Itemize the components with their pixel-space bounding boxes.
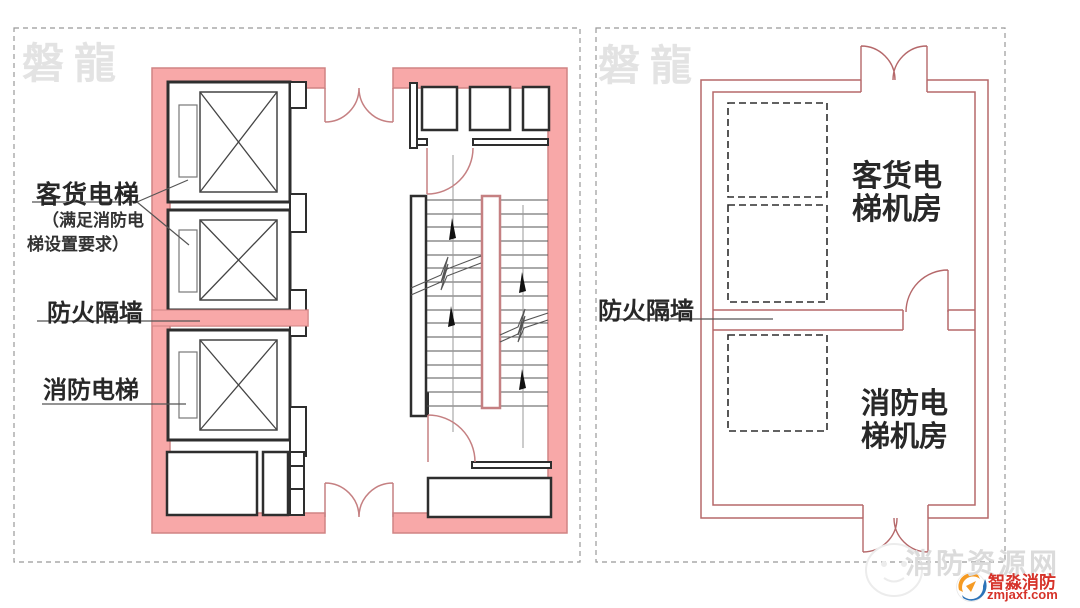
logo-domain: zmjaxf.com [987, 587, 1058, 602]
label-fire-machine-room: 消防电 梯机房 [861, 388, 948, 454]
watermark-panlong-left: 磐龍 [22, 30, 126, 91]
counterweight-3 [179, 352, 197, 418]
machine-room-doors [861, 46, 948, 552]
plan-linework [0, 0, 1080, 608]
machine-room-fire-partition [713, 310, 903, 330]
shaft-openings-dashed [728, 103, 827, 431]
counterweight-1 [179, 105, 197, 177]
label-fire-machine-room-line1: 消防电 [861, 388, 948, 421]
stair-break-lines [411, 256, 548, 342]
stairs [411, 155, 548, 448]
fire-partition-band [152, 310, 308, 326]
label-fire-machine-room-line2: 梯机房 [861, 421, 948, 454]
stair-rail-left [411, 196, 426, 416]
label-fire-elevator: 消防电梯 [43, 370, 139, 405]
label-fire-partition-left: 防火隔墙 [47, 293, 143, 328]
label-freight-machine-room: 客货电 梯机房 [852, 160, 942, 226]
bottom-service-rooms [167, 452, 304, 515]
label-freight-note-line2: 梯设置要求） [27, 230, 129, 255]
stair-rail-middle [482, 196, 500, 408]
label-freight-note-line1: （满足消防电 [42, 206, 144, 231]
label-freight-machine-room-line1: 客货电 [852, 160, 942, 193]
elevator-shafts [168, 82, 306, 456]
label-fire-partition-right: 防火隔墙 [598, 291, 694, 326]
watermark-panlong-right: 磐龍 [598, 32, 702, 93]
fire-elevator-diagram: 磐龍 磐龍 消防资源网 智淼消防 zmjaxf.com [0, 0, 1080, 608]
stair-enclosure-walls [410, 83, 551, 517]
label-freight-machine-room-line2: 梯机房 [852, 193, 942, 226]
top-duct-boxes [422, 87, 549, 130]
